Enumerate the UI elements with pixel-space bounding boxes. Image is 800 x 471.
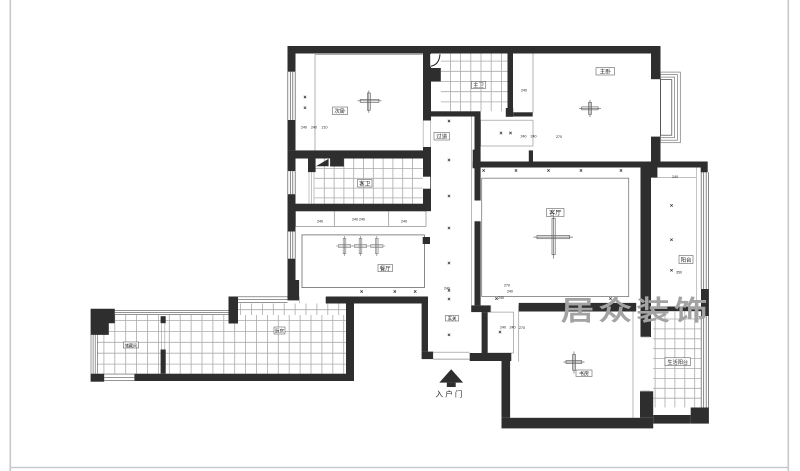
svg-text:240: 240 (359, 218, 365, 222)
svg-text:生活阳台: 生活阳台 (667, 358, 688, 366)
svg-text:主卧: 主卧 (600, 68, 612, 76)
svg-text:240: 240 (531, 135, 537, 139)
svg-text:入 户 门: 入 户 门 (435, 389, 462, 399)
svg-text:240: 240 (352, 218, 358, 222)
svg-text:240: 240 (498, 296, 504, 300)
svg-text:240: 240 (510, 326, 516, 330)
svg-text:240: 240 (521, 135, 527, 139)
svg-text:210: 210 (322, 126, 328, 130)
svg-text:240: 240 (311, 126, 317, 130)
svg-text:270: 270 (556, 135, 562, 139)
svg-text:350: 350 (676, 271, 682, 275)
svg-text:270: 270 (504, 284, 510, 288)
svg-text:次卧: 次卧 (334, 107, 346, 115)
svg-text:餐厅: 餐厅 (380, 264, 391, 272)
svg-text:阳台: 阳台 (681, 256, 692, 264)
svg-text:240: 240 (401, 220, 407, 224)
svg-text:270: 270 (519, 326, 525, 330)
svg-text:过道: 过道 (436, 133, 447, 141)
svg-text:240: 240 (444, 287, 450, 291)
svg-text:居众装饰: 居众装饰 (561, 297, 712, 327)
svg-text:240: 240 (301, 126, 307, 130)
svg-text:240: 240 (317, 220, 323, 224)
svg-text:客卫: 客卫 (359, 180, 370, 188)
svg-text:书房: 书房 (579, 370, 589, 377)
svg-text:240: 240 (507, 290, 513, 294)
svg-text:玄关: 玄关 (448, 315, 457, 322)
svg-text:厨房: 厨房 (275, 328, 285, 335)
svg-text:240: 240 (500, 326, 506, 330)
svg-text:240: 240 (672, 175, 678, 179)
svg-text:240: 240 (521, 89, 527, 93)
svg-text:主卫: 主卫 (473, 81, 484, 89)
svg-text:储藏间: 储藏间 (125, 342, 138, 349)
svg-text:客厅: 客厅 (549, 209, 561, 217)
